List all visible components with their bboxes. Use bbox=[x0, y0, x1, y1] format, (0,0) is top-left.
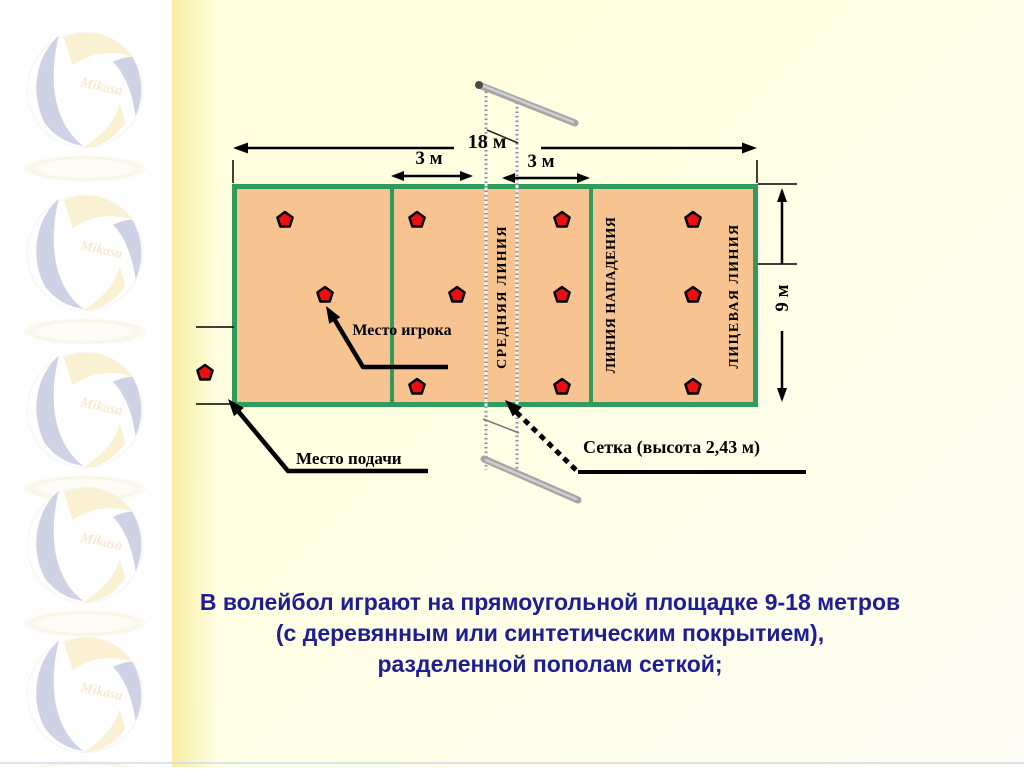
slide-bottom-rule bbox=[0, 762, 1024, 764]
caption: В волейбол играют на прямоугольной площа… bbox=[150, 587, 950, 680]
player-marker bbox=[197, 365, 212, 380]
dimension-court-height: 9 м bbox=[772, 268, 794, 328]
callout-net: Сетка (высота 2,43 м) bbox=[583, 437, 760, 458]
caption-line-3: разделенной пополам сеткой; bbox=[150, 649, 950, 680]
caption-line-1: В волейбол играют на прямоугольной площа… bbox=[150, 587, 950, 618]
callout-player-spot: Место игрока bbox=[352, 320, 452, 341]
label-center-line: СРЕДНЯЯ ЛИНИЯ bbox=[495, 192, 511, 402]
label-attack-line: ЛИНИЯ НАПАДЕНИЯ bbox=[604, 195, 620, 395]
presentation-slide: Mikasa bbox=[0, 0, 1024, 767]
dimension-attack-right: 3 м bbox=[510, 151, 572, 173]
caption-line-2: (с деревянным или синтетическим покрытие… bbox=[150, 618, 950, 649]
callout-serve-spot: Место подачи bbox=[296, 449, 402, 469]
dimension-attack-left: 3 м bbox=[398, 148, 460, 170]
label-end-line: ЛИЦЕВАЯ ЛИНИЯ bbox=[727, 201, 743, 391]
